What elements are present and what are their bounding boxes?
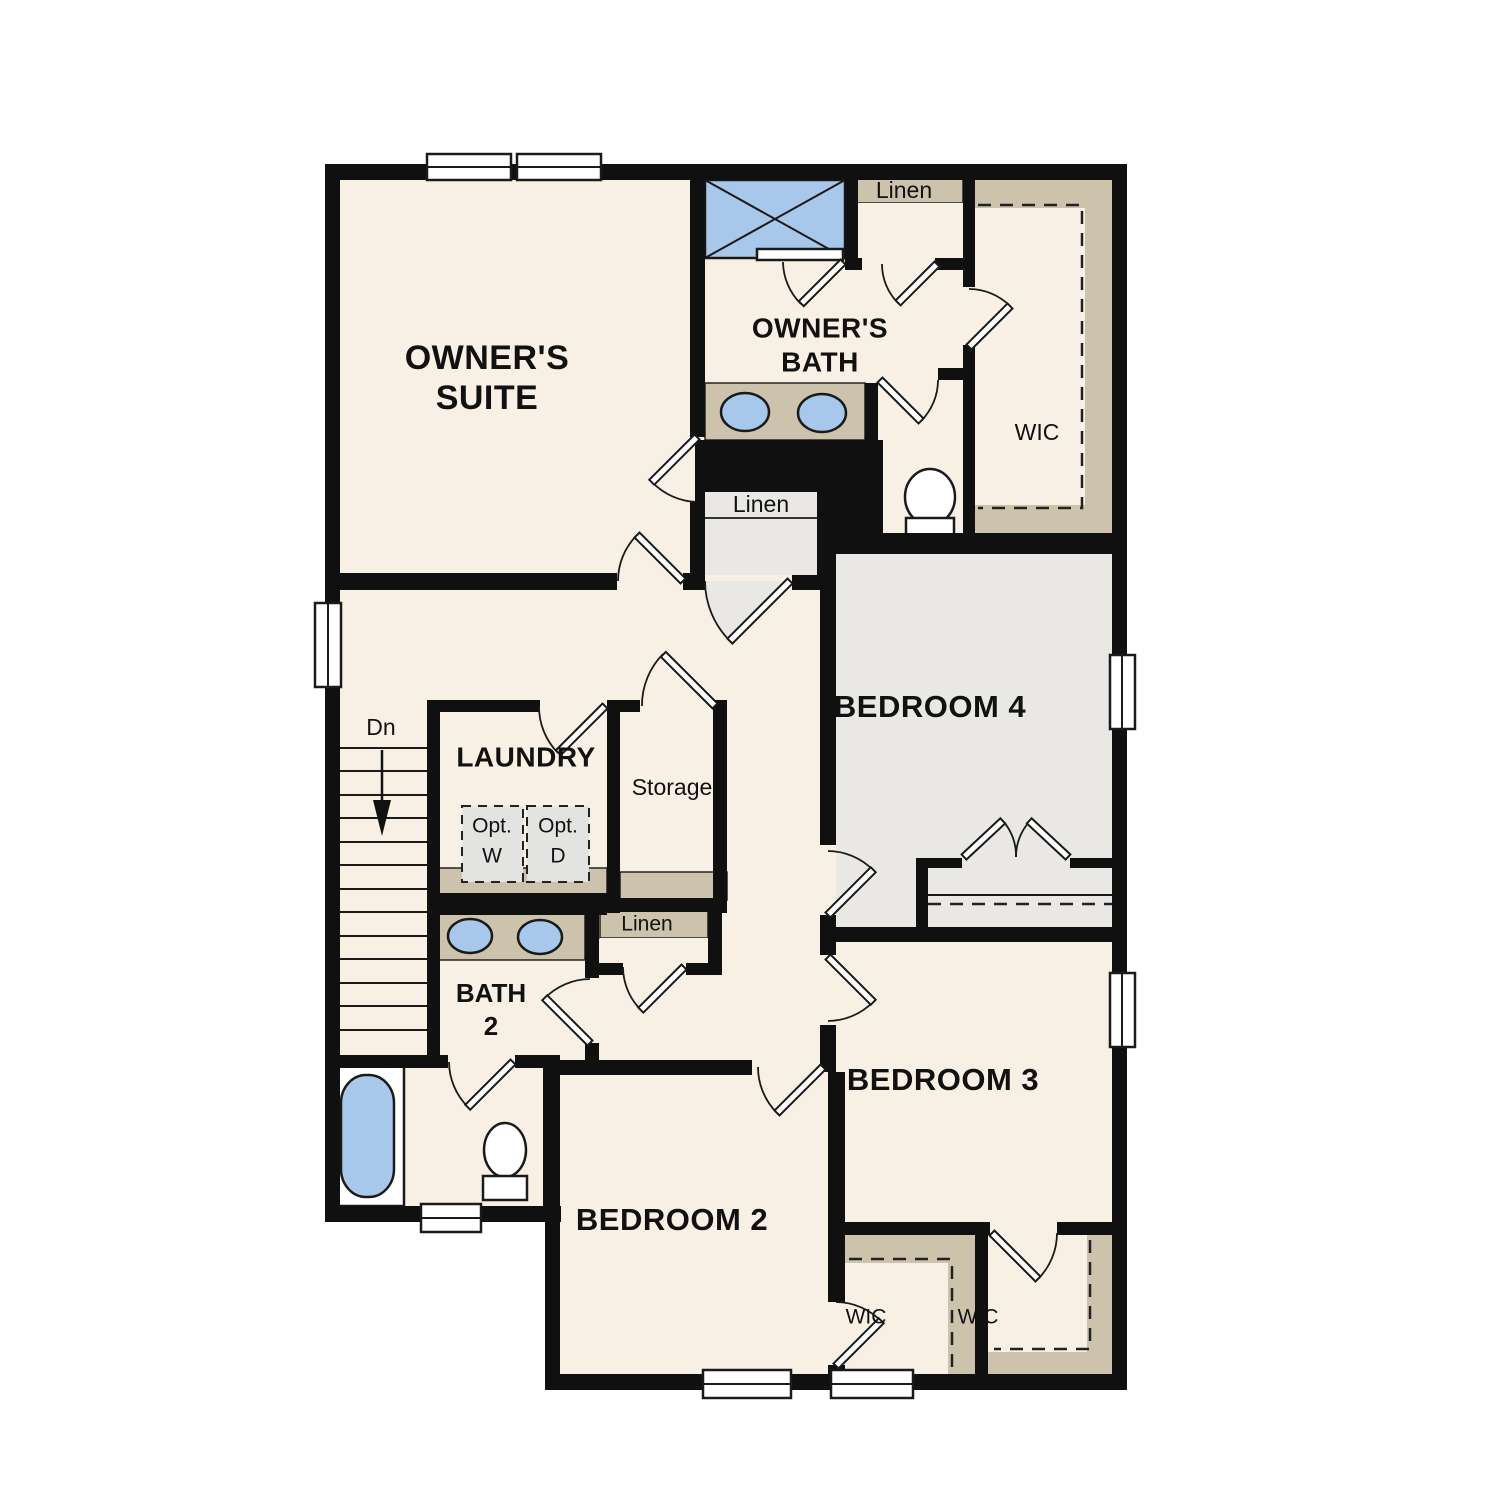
- floorplan-second-floor: OWNER'S SUITE OWNER'S BATH Linen WIC Lin…: [0, 0, 1500, 1500]
- opt-washer-label: Opt.: [472, 815, 512, 838]
- hall-linen-label: Linen: [733, 491, 789, 517]
- bedroom2-wic-label: WIC: [846, 1306, 887, 1329]
- storage-label: Storage: [632, 774, 713, 800]
- owners-wic-shelving: [975, 180, 1112, 533]
- owners-suite-window-icon: [427, 154, 511, 180]
- owners-bath-label: OWNER'S: [752, 312, 888, 343]
- owners-wic-label: WIC: [1015, 419, 1060, 445]
- bath2-label: BATH: [456, 978, 526, 1008]
- owners-suite-label: OWNER'S: [405, 339, 570, 377]
- bedroom4-window-icon: [1110, 655, 1135, 729]
- bath2-linen-label: Linen: [621, 913, 672, 936]
- owners-toilet-icon: [905, 469, 955, 536]
- bedroom3-wic-label: WIC: [958, 1306, 999, 1329]
- bedroom3-window-icon: [1110, 973, 1135, 1047]
- hall-window-icon: [315, 603, 341, 687]
- bedroom4-label: BEDROOM 4: [834, 689, 1027, 724]
- owners-suite-label: SUITE: [436, 379, 539, 417]
- floorplan-page: OWNER'S SUITE OWNER'S BATH Linen WIC Lin…: [0, 0, 1500, 1500]
- bath2-toilet-icon: [483, 1123, 527, 1200]
- opt-dryer-label: D: [550, 845, 565, 868]
- opt-dryer-label: Opt.: [538, 815, 578, 838]
- bathtub-icon: [333, 1066, 404, 1206]
- storage-shelf: [620, 872, 727, 900]
- owners-bath-label: BATH: [781, 346, 859, 377]
- laundry-fixtures: [438, 806, 607, 895]
- shower-icon: [705, 180, 845, 260]
- opt-washer-label: W: [482, 845, 502, 868]
- bedroom-4-floor: [836, 552, 1112, 942]
- bedroom2-window-icon: [703, 1370, 791, 1398]
- bath2-window-icon: [421, 1204, 481, 1232]
- bedroom2-wic-window-icon: [831, 1370, 913, 1398]
- owners-suite-window-icon: [517, 154, 601, 180]
- bath2-label: 2: [484, 1011, 498, 1041]
- stairs-down-label: Dn: [366, 714, 395, 740]
- owners-linen-label: Linen: [876, 177, 932, 203]
- bedroom2-label: BEDROOM 2: [576, 1202, 768, 1237]
- bath2-vanity-icon: [437, 912, 585, 960]
- bedroom3-label: BEDROOM 3: [847, 1062, 1039, 1097]
- owners-vanity-icon: [705, 383, 865, 440]
- laundry-label: LAUNDRY: [456, 741, 595, 772]
